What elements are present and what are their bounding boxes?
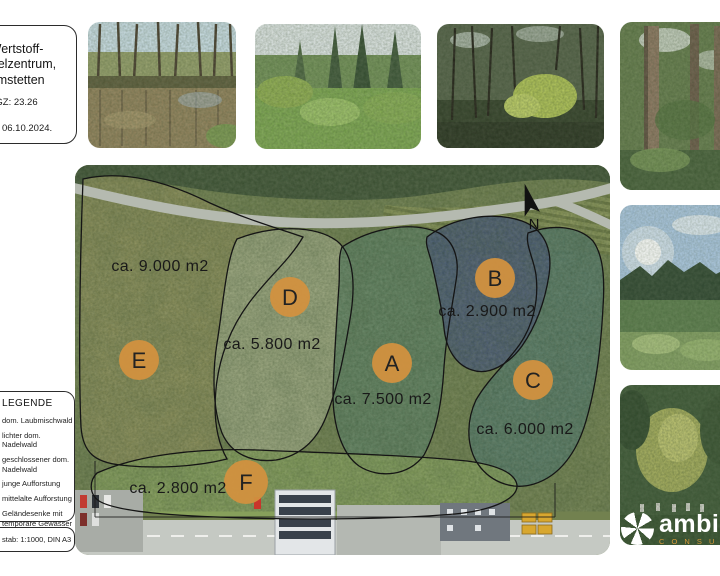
- legend-item: lichter dom. Nadelwald: [2, 431, 74, 450]
- legend-item: dom. Laubmischwald: [2, 416, 74, 425]
- zone-f-area: ca. 2.800 m2: [129, 480, 226, 497]
- zone-e-area: ca. 9.000 m2: [111, 258, 208, 275]
- photo-tall-trunks: [620, 22, 720, 190]
- file-number: GZ: 23.26: [0, 97, 38, 108]
- company-logo: ambie C O N S U: [621, 512, 720, 546]
- legend-title: LEGENDE: [2, 398, 71, 409]
- zone-a-area: ca. 7.500 m2: [334, 391, 431, 408]
- zone-d-letter: D: [282, 285, 298, 310]
- legend-item: junge Aufforstung: [2, 479, 74, 488]
- north-label: N: [529, 216, 540, 233]
- zone-c-area: ca. 6.000 m2: [476, 421, 573, 438]
- photo-dark-stand: [437, 24, 604, 148]
- aerial-map: N A B C D E F ca. 7: [70, 165, 615, 555]
- scale-block: stab: 1:1000, DIN A3: [0, 527, 75, 552]
- legend-item: Geländesenke mit temporäre Gewässer: [2, 509, 74, 528]
- logo-name: ambie: [659, 512, 720, 537]
- photo-sun-treeline: [620, 205, 720, 370]
- photo-spruce-clearing: [255, 24, 427, 149]
- legend-item: geschlossener dom. Nadelwald: [2, 455, 74, 474]
- aperture-icon: [621, 512, 654, 545]
- project-title: Wertstoff- mmelzentrum, Amstetten: [0, 42, 56, 88]
- zone-f-letter: F: [239, 470, 252, 495]
- zone-a-letter: A: [385, 351, 400, 376]
- logo-subtitle: C O N S U: [659, 538, 720, 546]
- title-block: Wertstoff- mmelzentrum, Amstetten GZ: 23…: [0, 25, 77, 144]
- photo-pond: [88, 22, 246, 148]
- legend: LEGENDE dom. Laubmischwald lichter dom. …: [0, 391, 75, 522]
- date-label: tum: 06.10.2024.: [0, 123, 52, 134]
- zone-b-area: ca. 2.900 m2: [438, 303, 535, 320]
- graphics-canvas: N A B C D E F ca. 7: [0, 0, 720, 576]
- legend-item: mittelalte Aufforstung: [2, 494, 74, 503]
- scale-label: stab: 1:1000, DIN A3: [2, 535, 71, 544]
- zone-d-area: ca. 5.800 m2: [223, 336, 320, 353]
- zone-b-letter: B: [488, 266, 503, 291]
- hall-building: [440, 503, 510, 541]
- zone-e-letter: E: [132, 348, 147, 373]
- solar-building: [275, 490, 335, 555]
- zone-c-letter: C: [525, 368, 541, 393]
- plan-sheet: N A B C D E F ca. 7: [0, 0, 720, 576]
